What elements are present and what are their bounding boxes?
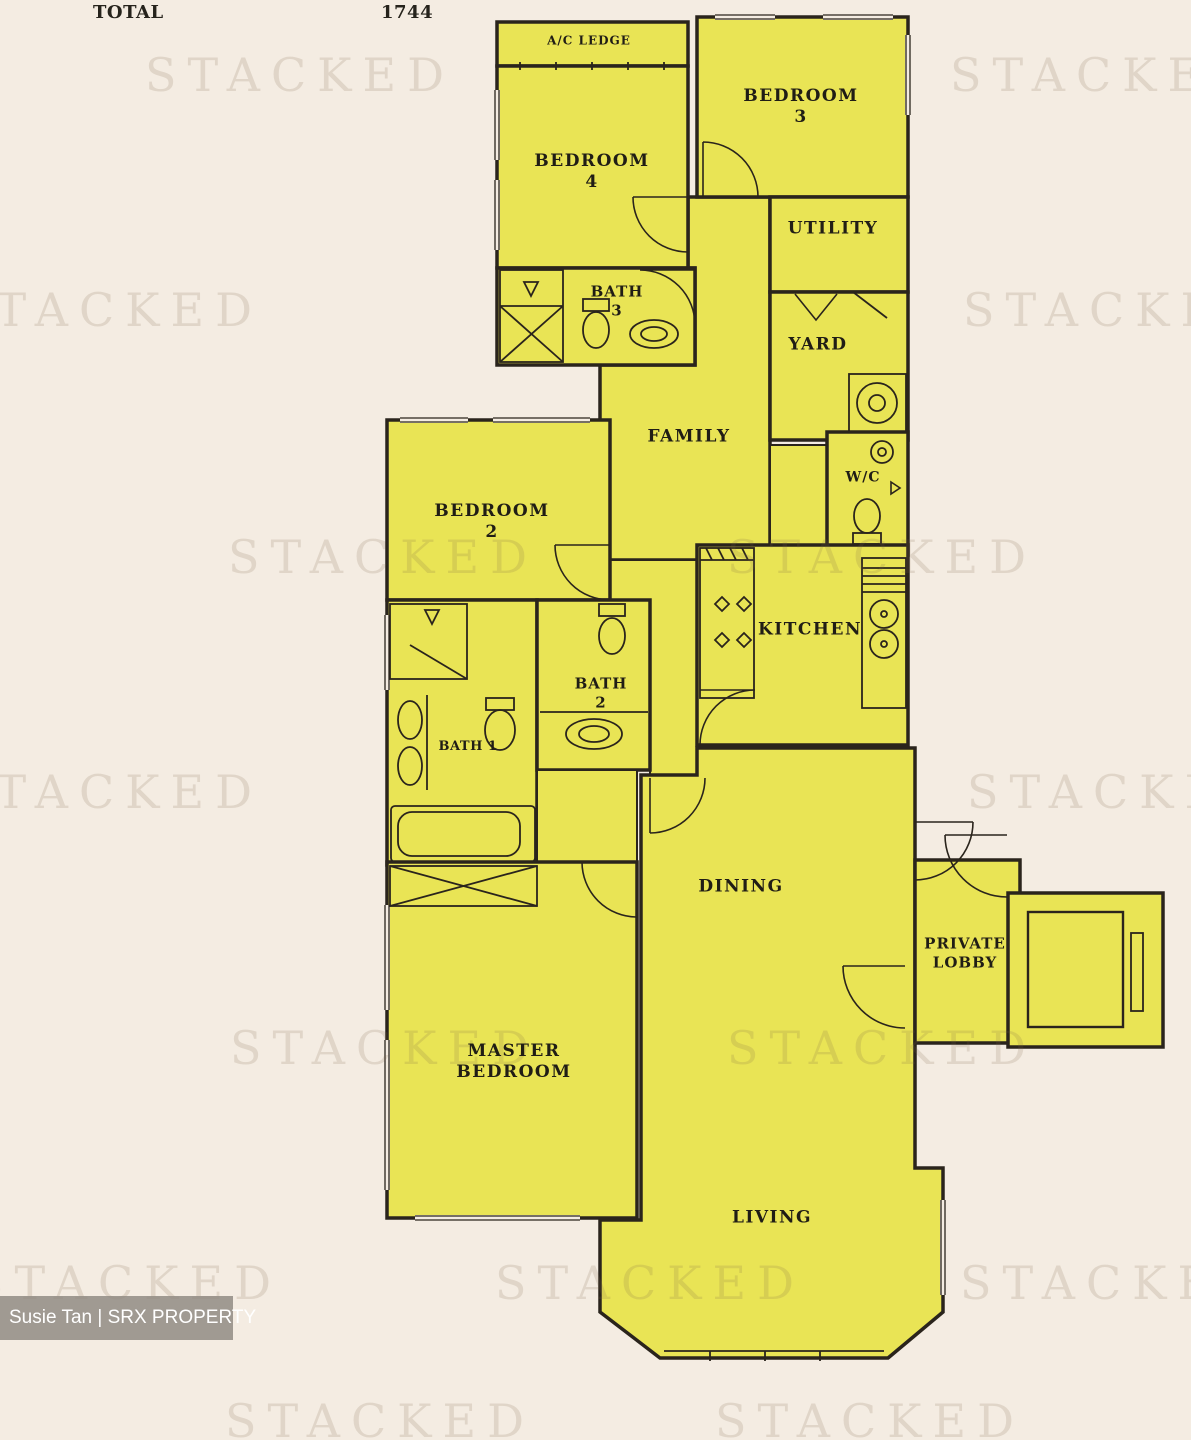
label-bedroom2: BEDROOM 2 [434, 501, 549, 544]
stacked-watermark: STACKED [963, 283, 1191, 337]
stacked-watermark: STACKED [0, 765, 263, 819]
stacked-watermark: STACKED [727, 1021, 1037, 1075]
label-bedroom3-line2: 3 [743, 107, 858, 128]
stacked-watermark: STACKED [145, 48, 455, 102]
label-ac-ledge: A/C LEDGE [547, 34, 631, 49]
label-private-lobby-line2: LOBBY [924, 953, 1006, 972]
label-bedroom4-line2: 4 [534, 172, 649, 193]
label-private-lobby: PRIVATE LOBBY [924, 934, 1006, 972]
stacked-watermark: STACKED [0, 283, 263, 337]
stacked-watermark: STACKED [727, 530, 1037, 584]
label-master-bedroom: MASTER BEDROOM [456, 1041, 571, 1084]
label-family: FAMILY [647, 426, 730, 447]
label-bath2-line1: BATH [575, 674, 628, 693]
floor-plan-page: STACKED STACKED STACKED STACKED STACKED … [0, 0, 1191, 1440]
label-master-line1: MASTER [456, 1041, 571, 1062]
label-bedroom4-line1: BEDROOM [534, 151, 649, 172]
label-master-line2: BEDROOM [456, 1062, 571, 1083]
label-bedroom2-line2: 2 [434, 522, 549, 543]
agent-credit-bar: Susie Tan | SRX PROPERTY [0, 1296, 233, 1340]
text-overlay: STACKED STACKED STACKED STACKED STACKED … [0, 0, 1191, 1440]
total-label: TOTAL [93, 2, 164, 23]
label-bath2: BATH 2 [575, 674, 628, 712]
stacked-watermark: STACKED [950, 48, 1191, 102]
stacked-watermark: STACKED [495, 1256, 805, 1310]
stacked-watermark: STACKED [967, 765, 1191, 819]
label-bath1: BATH 1 [439, 739, 498, 755]
label-bath3-line1: BATH [591, 282, 644, 301]
stacked-watermark: STACKED [225, 1394, 535, 1440]
label-private-lobby-line1: PRIVATE [924, 934, 1006, 953]
label-bath2-line2: 2 [575, 693, 628, 712]
stacked-watermark: STACKED [960, 1256, 1191, 1310]
label-yard: YARD [788, 334, 847, 355]
label-bedroom4: BEDROOM 4 [534, 151, 649, 194]
label-wc: W/C [846, 469, 881, 487]
label-bedroom2-line1: BEDROOM [434, 501, 549, 522]
label-dining: DINING [698, 876, 783, 897]
label-utility: UTILITY [788, 218, 879, 239]
label-bath3: BATH 3 [591, 282, 644, 320]
label-kitchen: KITCHEN [758, 619, 862, 640]
label-bath3-line2: 3 [591, 301, 644, 320]
total-value: 1744 [381, 2, 433, 23]
label-living: LIVING [732, 1207, 812, 1228]
label-bedroom3-line1: BEDROOM [743, 86, 858, 107]
label-bedroom3: BEDROOM 3 [743, 86, 858, 129]
stacked-watermark: STACKED [715, 1394, 1025, 1440]
